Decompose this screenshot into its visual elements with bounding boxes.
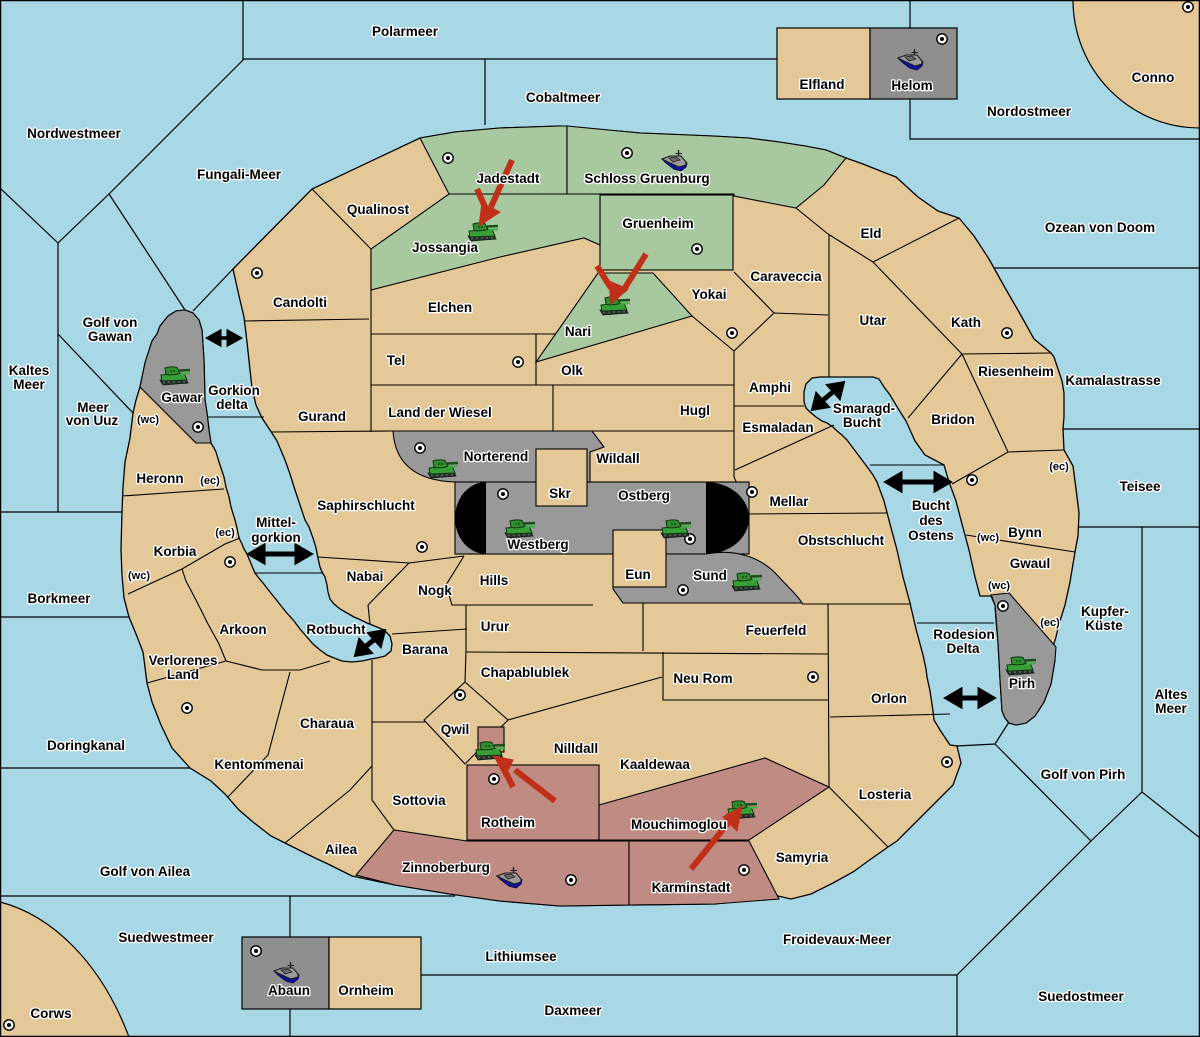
svg-text:Karminstadt: Karminstadt	[652, 880, 731, 895]
svg-text:Polarmeer: Polarmeer	[372, 24, 439, 39]
svg-text:Mittel-: Mittel-	[256, 515, 296, 530]
svg-text:Land: Land	[167, 667, 199, 682]
svg-text:Kamalastrasse: Kamalastrasse	[1065, 373, 1161, 388]
svg-text:Pirh: Pirh	[1009, 676, 1035, 691]
svg-text:Nordwestmeer: Nordwestmeer	[27, 126, 122, 141]
svg-text:Nari: Nari	[565, 324, 591, 339]
svg-text:Conno: Conno	[1132, 70, 1175, 85]
svg-text:Kaaldewaa: Kaaldewaa	[620, 757, 690, 772]
svg-text:Neu Rom: Neu Rom	[673, 671, 732, 686]
svg-text:Westberg: Westberg	[507, 537, 568, 552]
svg-text:Amphi: Amphi	[749, 380, 791, 395]
svg-text:Gruenheim: Gruenheim	[622, 216, 693, 231]
svg-text:Sottovia: Sottovia	[392, 793, 446, 808]
svg-text:Riesenheim: Riesenheim	[978, 364, 1054, 379]
svg-text:Ostberg: Ostberg	[618, 488, 670, 503]
svg-text:Charaua: Charaua	[300, 716, 355, 731]
svg-text:Doringkanal: Doringkanal	[47, 738, 125, 753]
svg-text:Nordostmeer: Nordostmeer	[987, 104, 1072, 119]
svg-text:Jossangia: Jossangia	[412, 240, 479, 255]
svg-text:Zinnoberburg: Zinnoberburg	[402, 860, 490, 875]
svg-text:Bucht: Bucht	[912, 498, 951, 513]
svg-text:Gurand: Gurand	[298, 409, 346, 424]
svg-text:Ozean von Doom: Ozean von Doom	[1045, 220, 1155, 235]
svg-text:Orlon: Orlon	[871, 691, 907, 706]
svg-text:Obstschlucht: Obstschlucht	[798, 533, 885, 548]
svg-text:Feuerfeld: Feuerfeld	[746, 623, 807, 638]
svg-text:Smaragd-: Smaragd-	[833, 401, 895, 416]
svg-text:Losteria: Losteria	[859, 787, 912, 802]
svg-text:Candolti: Candolti	[273, 295, 327, 310]
svg-text:Arkoon: Arkoon	[219, 622, 266, 637]
svg-text:(ec): (ec)	[215, 527, 235, 539]
svg-text:Rotbucht: Rotbucht	[306, 622, 366, 637]
svg-text:Bucht: Bucht	[843, 415, 882, 430]
svg-text:Gawar: Gawar	[161, 390, 203, 405]
svg-text:Schloss Gruenburg: Schloss Gruenburg	[584, 171, 709, 186]
svg-text:Korbia: Korbia	[154, 544, 197, 559]
svg-text:(wc): (wc)	[137, 414, 159, 426]
svg-text:(wc): (wc)	[128, 570, 150, 582]
svg-text:Barana: Barana	[402, 642, 448, 657]
svg-text:Nogk: Nogk	[418, 583, 452, 598]
svg-text:Qwil: Qwil	[441, 722, 470, 737]
svg-text:Golf von Pirh: Golf von Pirh	[1041, 767, 1126, 782]
svg-text:Ailea: Ailea	[325, 842, 358, 857]
svg-text:Gorkion: Gorkion	[208, 383, 260, 398]
svg-text:Mouchimoglou: Mouchimoglou	[631, 817, 727, 832]
svg-text:Golf von Ailea: Golf von Ailea	[100, 864, 191, 879]
svg-text:Altes: Altes	[1154, 687, 1187, 702]
svg-text:Corws: Corws	[30, 1006, 71, 1021]
svg-text:(ec): (ec)	[1040, 617, 1060, 629]
svg-text:Meer: Meer	[13, 377, 45, 392]
svg-text:Meer: Meer	[1155, 701, 1187, 716]
svg-text:(wc): (wc)	[988, 580, 1010, 592]
svg-text:Fungali-Meer: Fungali-Meer	[197, 167, 282, 182]
svg-text:Suedostmeer: Suedostmeer	[1038, 989, 1124, 1004]
svg-text:Ostens: Ostens	[908, 528, 954, 543]
svg-text:Kupfer-: Kupfer-	[1081, 604, 1129, 619]
svg-text:Gwaul: Gwaul	[1010, 556, 1051, 571]
svg-text:Eld: Eld	[860, 226, 881, 241]
svg-text:Cobaltmeer: Cobaltmeer	[526, 90, 601, 105]
svg-text:Tel: Tel	[387, 353, 406, 368]
svg-text:Elfland: Elfland	[799, 77, 844, 92]
svg-text:Bynn: Bynn	[1008, 525, 1042, 540]
svg-text:Nilldall: Nilldall	[554, 741, 598, 756]
svg-text:Helom: Helom	[891, 78, 932, 93]
svg-text:Heronn: Heronn	[136, 471, 183, 486]
svg-text:Golf von: Golf von	[83, 315, 138, 330]
svg-text:Abaun: Abaun	[268, 983, 310, 998]
svg-text:Esmaladan: Esmaladan	[742, 420, 813, 435]
svg-text:Hills: Hills	[480, 573, 509, 588]
svg-text:(ec): (ec)	[200, 475, 220, 487]
svg-text:Olk: Olk	[561, 363, 583, 378]
svg-text:Samyria: Samyria	[776, 850, 829, 865]
svg-text:gorkion: gorkion	[251, 530, 301, 545]
svg-text:Yokai: Yokai	[691, 287, 726, 302]
svg-text:Daxmeer: Daxmeer	[544, 1003, 602, 1018]
svg-text:Norterend: Norterend	[464, 449, 529, 464]
svg-text:Saphirschlucht: Saphirschlucht	[317, 498, 415, 513]
svg-text:Kaltes: Kaltes	[9, 363, 50, 378]
svg-text:Lithiumsee: Lithiumsee	[485, 949, 557, 964]
svg-text:Chapablublek: Chapablublek	[481, 665, 570, 680]
svg-text:Rodesion: Rodesion	[933, 627, 995, 642]
svg-text:des: des	[919, 513, 942, 528]
svg-text:Qualinost: Qualinost	[347, 202, 410, 217]
svg-text:Delta: Delta	[946, 641, 980, 656]
svg-text:Wildall: Wildall	[596, 451, 639, 466]
svg-text:Mellar: Mellar	[769, 494, 809, 509]
svg-text:Teisee: Teisee	[1119, 479, 1161, 494]
svg-text:Nabai: Nabai	[347, 569, 384, 584]
svg-text:Kentommenai: Kentommenai	[214, 757, 303, 772]
svg-text:Hugl: Hugl	[680, 403, 710, 418]
svg-text:Land der Wiesel: Land der Wiesel	[388, 405, 491, 420]
svg-text:Skr: Skr	[549, 486, 572, 501]
svg-text:Borkmeer: Borkmeer	[27, 591, 91, 606]
svg-text:(ec): (ec)	[1049, 461, 1069, 473]
svg-text:Urur: Urur	[481, 619, 510, 634]
svg-text:Utar: Utar	[859, 313, 887, 328]
svg-text:Verlorenes: Verlorenes	[148, 653, 217, 668]
svg-text:Jadestadt: Jadestadt	[476, 171, 540, 186]
svg-text:Bridon: Bridon	[931, 412, 975, 427]
svg-text:(wc): (wc)	[977, 532, 999, 544]
svg-text:Gawan: Gawan	[88, 329, 132, 344]
svg-text:Sund: Sund	[693, 568, 727, 583]
svg-text:Ornheim: Ornheim	[338, 983, 394, 998]
svg-text:Froidevaux-Meer: Froidevaux-Meer	[783, 932, 892, 947]
svg-text:von Uuz: von Uuz	[66, 413, 119, 428]
svg-text:Rotheim: Rotheim	[481, 815, 535, 830]
svg-text:Caraveccia: Caraveccia	[750, 269, 822, 284]
svg-text:Küste: Küste	[1085, 618, 1123, 633]
svg-text:Elchen: Elchen	[428, 300, 472, 315]
svg-text:Suedwestmeer: Suedwestmeer	[118, 930, 214, 945]
svg-text:Kath: Kath	[951, 315, 981, 330]
svg-text:delta: delta	[216, 397, 248, 412]
svg-text:Eun: Eun	[625, 567, 651, 582]
